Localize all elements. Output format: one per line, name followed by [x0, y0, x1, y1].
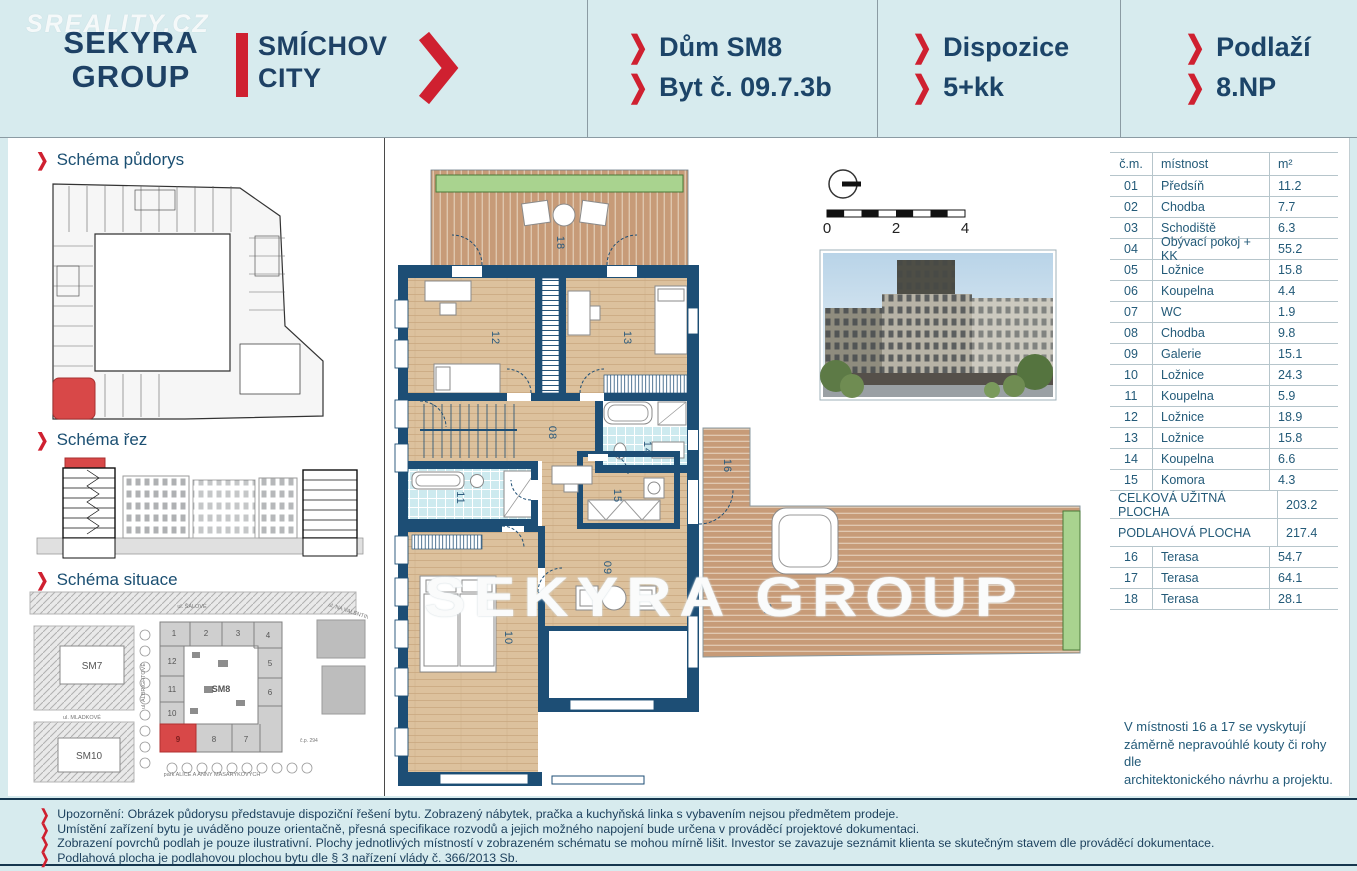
table-cell: WC [1152, 302, 1270, 322]
table-cell: místnost [1152, 153, 1270, 175]
window-lower-edge [552, 776, 644, 784]
table-cell: 06 [1110, 284, 1152, 298]
street-label: ul. MLADKOVÉ [63, 714, 101, 721]
chevron-icon: ❯ [36, 429, 49, 451]
terrace-note-line: V místnosti 16 a 17 se vyskytují [1124, 718, 1344, 736]
table-cell: 4.4 [1270, 284, 1330, 298]
logo-line2: GROUP [38, 60, 224, 94]
terrace-18: 18 [431, 170, 688, 267]
scale-bar: 0 2 4 [823, 210, 969, 237]
table-row: 18Terasa28.1 [1110, 589, 1338, 610]
table-cell: 17 [1110, 571, 1152, 585]
site-unit-number: 6 [268, 688, 273, 697]
floor-plan: 18 16 17 [392, 148, 1107, 796]
table-cell: 1.9 [1270, 305, 1330, 319]
street-label: ul. ALBRIGHTOVÉ [140, 663, 147, 709]
svg-text:08: 08 [546, 426, 558, 440]
section-schema [35, 452, 365, 566]
summary-label: CELKOVÁ UŽITNÁ PLOCHA [1110, 491, 1278, 518]
floor-value: 8.NP [1216, 72, 1276, 103]
site-unit-number: 9 [176, 735, 181, 744]
table-cell: 15.1 [1270, 347, 1330, 361]
table-cell: 6.6 [1270, 452, 1330, 466]
terrace-note-line: architektonického návrhu a projektu. [1124, 771, 1344, 789]
table-cell: Koupelna [1152, 386, 1270, 406]
table-row: 01Předsíň11.2 [1110, 176, 1338, 197]
table-row: 05Ložnice15.8 [1110, 260, 1338, 281]
closet-shaft [542, 278, 559, 393]
svg-text:14: 14 [641, 441, 653, 455]
chevron-icon: ❯ [912, 29, 932, 65]
disclaimer-text: Umístění zařízení bytu je uváděno pouze … [57, 822, 919, 836]
table-cell: 13 [1110, 431, 1152, 445]
table-cell: 18.9 [1270, 410, 1330, 424]
chevron-icon: ❯ [1185, 69, 1205, 105]
gallery-void [549, 631, 687, 698]
disclaimer-line: ❯Podlahová plocha je podlahovou plochou … [0, 851, 1357, 866]
north-arrow-icon [829, 170, 861, 198]
table-cell: Koupelna [1152, 449, 1270, 469]
schema-pudorys-heading: ❯ Schéma půdorys [36, 150, 184, 170]
disclaimer: ❯Upozornění: Obrázek půdorysu představuj… [0, 798, 1357, 866]
table-cell: č.m. [1110, 157, 1152, 171]
logo-divider-bar [236, 33, 248, 97]
table-cell: 55.2 [1270, 242, 1330, 256]
room-label-18: 18 [554, 236, 566, 250]
table-cell: 15 [1110, 473, 1152, 487]
table-cell: 4.3 [1270, 473, 1330, 487]
chevron-icon: ❯ [628, 69, 648, 105]
table-row: 16Terasa54.7 [1110, 547, 1338, 568]
site-unit-number: 12 [168, 657, 177, 666]
table-cell: 64.1 [1270, 571, 1330, 585]
summary-value: 217.4 [1278, 526, 1338, 540]
table-row: 10Ložnice24.3 [1110, 365, 1338, 386]
table-row: 04Obývací pokoj + KK55.2 [1110, 239, 1338, 260]
block-label-sm7: SM7 [82, 661, 103, 672]
table-cell: 05 [1110, 263, 1152, 277]
terrace-note-line: záměrně nepravoúhlé kouty či rohy dle [1124, 736, 1344, 771]
table-row: 17Terasa64.1 [1110, 568, 1338, 589]
svg-text:4: 4 [961, 220, 969, 237]
header-section-unit: ❯ Dům SM8 ❯ Byt č. 09.7.3b [628, 0, 877, 137]
table-row: 13Ložnice15.8 [1110, 428, 1338, 449]
table-cell: Terasa [1152, 568, 1270, 588]
site-unit-number: 5 [268, 659, 273, 668]
sekyra-group-logo: SEKYRA GROUP [38, 26, 224, 94]
project-name: SMÍCHOV CITY [258, 30, 388, 94]
table-row: 06Koupelna4.4 [1110, 281, 1338, 302]
header-section-layout: ❯ Dispozice ❯ 5+kk [912, 0, 1120, 137]
street-label: park ALICE A ANNY MASARYKOVÝCH [164, 771, 261, 778]
header-divider-3 [1120, 0, 1121, 137]
disclaimer-line: ❯Umístění zařízení bytu je uváděno pouze… [0, 822, 1357, 837]
table-cell: 54.7 [1270, 550, 1330, 564]
header: SREALITY.CZ SEKYRA GROUP SMÍCHOV CITY ❯ … [0, 0, 1357, 138]
site-unit-number: 2 [204, 629, 209, 638]
table-cell: 11 [1110, 389, 1152, 403]
table-cell: Ložnice [1152, 428, 1270, 448]
floorplate-schema [35, 176, 337, 424]
highlighted-unit [53, 378, 95, 419]
table-cell: Galerie [1152, 344, 1270, 364]
project-line1: SMÍCHOV [258, 30, 388, 62]
table-cell: 12 [1110, 410, 1152, 424]
table-cell: 15.8 [1270, 431, 1330, 445]
chevron-icon: ❯ [1185, 29, 1205, 65]
table-cell: 04 [1110, 242, 1152, 256]
table-cell: Komora [1152, 470, 1270, 490]
wardrobe-10 [412, 535, 482, 549]
table-row: 09Galerie15.1 [1110, 344, 1338, 365]
site-unit-number: 10 [168, 709, 177, 718]
wardrobe-13 [604, 375, 687, 393]
sidebar-divider [384, 138, 385, 796]
svg-text:13: 13 [621, 331, 633, 345]
disclaimer-text: Podlahová plocha je podlahovou plochou b… [57, 851, 518, 865]
table-row: 15Komora4.3 [1110, 470, 1338, 491]
table-cell: Terasa [1152, 547, 1270, 567]
disclaimer-text: Zobrazení povrchů podlah je pouze ilustr… [57, 836, 1214, 850]
table-header-row: č.m.místnostm² [1110, 152, 1338, 176]
table-row: 07WC1.9 [1110, 302, 1338, 323]
table-summary-row: PODLAHOVÁ PLOCHA217.4 [1110, 519, 1338, 547]
layout-title: Dispozice [943, 32, 1069, 63]
site-unit-number: 11 [168, 685, 177, 694]
svg-text:12: 12 [489, 331, 501, 345]
terrace-note: V místnosti 16 a 17 se vyskytujízáměrně … [1124, 718, 1344, 788]
header-divider-1 [587, 0, 588, 137]
chevron-icon: ❯ [40, 850, 49, 867]
table-row: 08Chodba9.8 [1110, 323, 1338, 344]
room-table: č.m.místnostm²01Předsíň11.202Chodba7.703… [1110, 152, 1338, 610]
chevron-icon: ❯ [36, 569, 49, 591]
table-cell: 11.2 [1270, 179, 1330, 193]
block-label-sm10: SM10 [76, 751, 103, 762]
table-cell: Ložnice [1152, 407, 1270, 427]
table-cell: 9.8 [1270, 326, 1330, 340]
table-cell: 10 [1110, 368, 1152, 382]
header-section-floor: ❯ Podlaží ❯ 8.NP [1185, 0, 1357, 137]
building-label: Dům SM8 [659, 32, 782, 63]
building-photo [820, 250, 1056, 400]
table-cell: Chodba [1152, 323, 1270, 343]
table-cell: 24.3 [1270, 368, 1330, 382]
disclaimer-line: ❯Upozornění: Obrázek půdorysu představuj… [0, 807, 1357, 822]
site-unit-number: 1 [172, 629, 177, 638]
header-divider-2 [877, 0, 878, 137]
table-cell: Obývací pokoj + KK [1152, 239, 1270, 259]
svg-text:2: 2 [892, 220, 900, 237]
site-unit-number: 3 [236, 629, 241, 638]
room-label-17: 17 [761, 603, 773, 617]
table-cell: 07 [1110, 305, 1152, 319]
svg-text:10: 10 [502, 631, 514, 645]
logo-chevron-icon [418, 30, 460, 106]
street-label: č.p. 294 [300, 738, 318, 744]
disclaimer-text: Upozornění: Obrázek půdorysu představuje… [57, 807, 898, 821]
summary-value: 203.2 [1278, 498, 1338, 512]
table-row: 14Koupelna6.6 [1110, 449, 1338, 470]
table-summary-row: CELKOVÁ UŽITNÁ PLOCHA203.2 [1110, 491, 1338, 519]
table-row: 02Chodba7.7 [1110, 197, 1338, 218]
project-line2: CITY [258, 62, 388, 94]
logo-line1: SEKYRA [38, 26, 224, 60]
svg-text:0: 0 [823, 220, 831, 237]
table-cell: 14 [1110, 452, 1152, 466]
block-label-sm8: SM8 [212, 684, 231, 694]
table-row: 11Koupelna5.9 [1110, 386, 1338, 407]
disclaimer-line: ❯Zobrazení povrchů podlah je pouze ilust… [0, 836, 1357, 851]
chevron-icon: ❯ [912, 69, 932, 105]
table-cell: Ložnice [1152, 365, 1270, 385]
table-cell: 5.9 [1270, 389, 1330, 403]
chevron-icon: ❯ [36, 149, 49, 171]
schema-rez-heading: ❯ Schéma řez [36, 430, 147, 450]
svg-text:15: 15 [611, 489, 623, 503]
table-cell: Koupelna [1152, 281, 1270, 301]
table-cell: 09 [1110, 347, 1152, 361]
table-cell: 18 [1110, 592, 1152, 606]
site-plan-schema: SM7 SM10 SM8 123456789101112 ul. ŠÁLOVÉ … [22, 590, 368, 788]
table-cell: Ložnice [1152, 260, 1270, 280]
site-unit-number: 4 [266, 631, 271, 640]
table-cell: Terasa [1152, 589, 1270, 609]
brochure-page: SREALITY.CZ SEKYRA GROUP SMÍCHOV CITY ❯ … [0, 0, 1357, 871]
chevron-icon: ❯ [628, 29, 648, 65]
table-cell: 6.3 [1270, 221, 1330, 235]
street-label: ul. ŠÁLOVÉ [177, 603, 207, 610]
table-cell: 02 [1110, 200, 1152, 214]
svg-text:09: 09 [601, 561, 613, 575]
room-10-furniture [420, 576, 496, 672]
table-cell: 08 [1110, 326, 1152, 340]
summary-label: PODLAHOVÁ PLOCHA [1110, 519, 1278, 546]
site-unit-number: 7 [244, 735, 249, 744]
table-cell: 01 [1110, 179, 1152, 193]
unit-label: Byt č. 09.7.3b [659, 72, 832, 103]
table-cell: 16 [1110, 550, 1152, 564]
table-cell: 7.7 [1270, 200, 1330, 214]
room-label-16: 16 [721, 459, 733, 473]
table-cell: Chodba [1152, 197, 1270, 217]
schema-situace-heading: ❯ Schéma situace [36, 570, 178, 590]
terrace-16-17: 16 17 [703, 428, 1080, 657]
site-unit-number: 8 [212, 735, 217, 744]
floor-title: Podlaží [1216, 32, 1311, 63]
layout-value: 5+kk [943, 72, 1004, 103]
table-cell: 28.1 [1270, 592, 1330, 606]
table-cell: Předsíň [1152, 176, 1270, 196]
table-row: 12Ložnice18.9 [1110, 407, 1338, 428]
table-cell: m² [1270, 157, 1330, 171]
table-cell: 15.8 [1270, 263, 1330, 277]
table-cell: 03 [1110, 221, 1152, 235]
svg-text:11: 11 [454, 491, 466, 504]
